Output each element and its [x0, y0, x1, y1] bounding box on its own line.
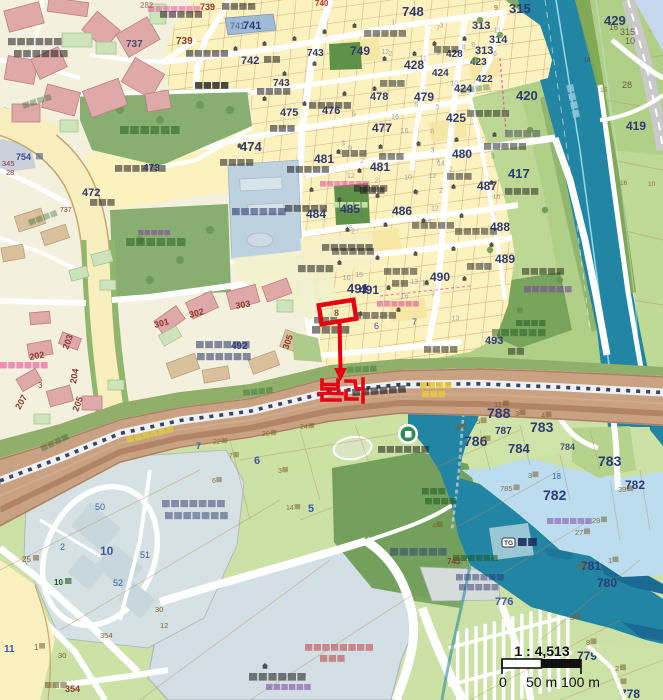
svg-text:5: 5: [570, 613, 574, 622]
svg-text:7: 7: [229, 453, 233, 460]
svg-text:784: 784: [508, 441, 530, 456]
svg-text:478: 478: [370, 91, 388, 103]
svg-text:417: 417: [508, 166, 530, 181]
svg-text:2: 2: [439, 188, 443, 195]
svg-text:28: 28: [6, 168, 14, 177]
svg-text:354: 354: [65, 684, 80, 694]
svg-text:2: 2: [375, 178, 379, 185]
svg-text:6: 6: [212, 478, 216, 485]
svg-text:1 : 4,513: 1 : 4,513: [514, 643, 569, 659]
svg-text:24: 24: [300, 424, 308, 431]
svg-text:5: 5: [308, 503, 314, 515]
svg-text:27: 27: [575, 528, 583, 537]
svg-text:743: 743: [273, 78, 290, 89]
svg-text:3: 3: [515, 409, 519, 418]
svg-text:25: 25: [22, 555, 31, 564]
svg-text:20: 20: [262, 431, 270, 438]
svg-text:315: 315: [509, 1, 531, 16]
svg-text:354: 354: [100, 631, 113, 640]
svg-text:2: 2: [360, 158, 364, 165]
svg-text:9: 9: [455, 423, 459, 432]
svg-text:16: 16: [391, 114, 399, 121]
svg-text:743: 743: [307, 48, 324, 59]
svg-text:487: 487: [477, 179, 497, 193]
svg-text:8: 8: [462, 44, 466, 51]
svg-text:8: 8: [430, 129, 434, 136]
svg-text:740: 740: [315, 0, 329, 8]
svg-text:13: 13: [452, 316, 460, 323]
svg-text:491: 491: [359, 283, 379, 297]
svg-text:743: 743: [447, 557, 461, 566]
svg-text:5: 5: [476, 417, 480, 426]
svg-text:783: 783: [598, 453, 622, 469]
svg-text:30: 30: [155, 605, 163, 614]
svg-text:0: 0: [499, 674, 507, 690]
svg-text:5: 5: [414, 102, 418, 109]
svg-text:10: 10: [450, 80, 458, 87]
svg-text:10: 10: [100, 544, 114, 558]
svg-text:481: 481: [314, 152, 334, 166]
svg-text:7: 7: [412, 317, 417, 327]
svg-text:50: 50: [95, 502, 105, 512]
svg-text:472: 472: [82, 187, 100, 199]
svg-text:15: 15: [463, 151, 471, 158]
svg-text:425: 425: [446, 111, 466, 125]
svg-text:5: 5: [436, 104, 440, 111]
svg-text:8: 8: [480, 435, 484, 444]
svg-text:787: 787: [495, 426, 512, 437]
svg-text:737: 737: [60, 207, 72, 214]
svg-text:486: 486: [392, 204, 412, 218]
svg-text:3: 3: [491, 153, 495, 160]
svg-text:422: 422: [476, 74, 493, 85]
svg-text:749: 749: [350, 44, 370, 58]
svg-text:748: 748: [402, 4, 424, 19]
svg-text:780: 780: [597, 576, 617, 590]
svg-text:313: 313: [475, 45, 493, 57]
svg-text:3: 3: [431, 148, 435, 155]
svg-text:6: 6: [395, 82, 399, 89]
svg-text:473: 473: [143, 163, 160, 174]
svg-text:4: 4: [427, 219, 431, 226]
svg-text:2: 2: [60, 542, 65, 552]
svg-text:742: 742: [241, 55, 259, 67]
svg-text:3: 3: [38, 381, 43, 390]
svg-text:16: 16: [493, 194, 501, 201]
svg-text:10: 10: [625, 36, 635, 46]
svg-text:39: 39: [618, 485, 626, 494]
svg-text:419: 419: [626, 119, 646, 133]
svg-text:16: 16: [620, 180, 628, 187]
svg-text:9: 9: [348, 145, 352, 152]
svg-text:1: 1: [391, 20, 395, 27]
svg-text:13: 13: [410, 279, 418, 286]
svg-text:282: 282: [140, 1, 154, 10]
svg-text:12: 12: [347, 173, 355, 180]
svg-text:52: 52: [113, 578, 123, 588]
svg-text:16: 16: [401, 128, 409, 135]
svg-text:7: 7: [436, 25, 440, 32]
svg-text:50 m: 50 m: [526, 674, 557, 690]
svg-text:739: 739: [200, 2, 215, 12]
svg-text:3: 3: [341, 140, 345, 147]
svg-text:481: 481: [370, 160, 390, 174]
svg-text:7: 7: [431, 291, 435, 298]
svg-text:51: 51: [140, 550, 150, 560]
svg-text:11: 11: [419, 55, 426, 62]
svg-text:14: 14: [286, 505, 294, 512]
svg-text:776: 776: [495, 596, 513, 608]
svg-text:8: 8: [471, 42, 475, 49]
svg-text:14: 14: [583, 57, 591, 64]
svg-text:3: 3: [528, 471, 532, 480]
svg-text:10: 10: [404, 174, 412, 181]
svg-text:16: 16: [401, 294, 409, 301]
svg-text:11: 11: [494, 400, 502, 409]
svg-text:2: 2: [449, 166, 453, 173]
svg-text:9: 9: [481, 263, 485, 270]
svg-text:345: 345: [2, 159, 15, 168]
svg-text:7: 7: [196, 441, 201, 451]
svg-text:6: 6: [374, 321, 379, 331]
svg-text:420: 420: [516, 88, 538, 103]
svg-text:4: 4: [383, 314, 387, 321]
svg-text:490: 490: [430, 270, 450, 284]
svg-text:493: 493: [485, 335, 503, 347]
svg-text:4: 4: [541, 411, 545, 420]
svg-text:784: 784: [560, 442, 575, 452]
svg-text:489: 489: [495, 252, 515, 266]
svg-text:485: 485: [340, 202, 360, 216]
svg-text:424: 424: [432, 68, 449, 79]
svg-text:29: 29: [592, 516, 600, 525]
svg-text:492: 492: [231, 341, 248, 352]
svg-text:12: 12: [429, 173, 437, 180]
svg-text:476: 476: [322, 105, 340, 117]
svg-text:783: 783: [530, 419, 554, 435]
svg-text:484: 484: [306, 207, 326, 221]
svg-text:10: 10: [54, 578, 63, 587]
svg-text:741: 741: [230, 21, 245, 31]
svg-text:12: 12: [431, 206, 439, 213]
svg-text:7: 7: [575, 562, 579, 571]
svg-text:754: 754: [16, 152, 31, 162]
svg-text:100 m: 100 m: [561, 674, 600, 690]
svg-text:15: 15: [355, 272, 363, 279]
svg-text:475: 475: [280, 107, 298, 119]
svg-text:15: 15: [600, 87, 608, 94]
svg-text:1: 1: [608, 556, 612, 565]
svg-text:3: 3: [440, 23, 444, 30]
svg-text:18: 18: [552, 472, 561, 481]
svg-text:7: 7: [436, 160, 440, 167]
svg-text:10: 10: [343, 275, 351, 282]
svg-text:10: 10: [648, 181, 656, 188]
svg-text:737: 737: [126, 39, 143, 50]
svg-text:12: 12: [382, 125, 390, 132]
svg-text:12: 12: [160, 621, 168, 630]
svg-text:6: 6: [493, 51, 497, 58]
svg-text:30: 30: [58, 651, 66, 660]
svg-text:4: 4: [497, 143, 501, 150]
svg-text:1: 1: [34, 643, 39, 652]
svg-text:739: 739: [176, 36, 193, 47]
svg-text:741: 741: [243, 20, 261, 32]
svg-text:28: 28: [622, 80, 632, 90]
svg-text:4: 4: [432, 521, 436, 530]
svg-text:8: 8: [334, 308, 339, 318]
svg-text:12: 12: [382, 49, 390, 56]
svg-text:6: 6: [254, 455, 260, 467]
svg-text:3: 3: [278, 468, 282, 475]
svg-text:782: 782: [543, 487, 567, 503]
svg-text:16: 16: [609, 23, 618, 32]
svg-text:11: 11: [4, 644, 15, 655]
svg-text:22: 22: [213, 439, 221, 446]
svg-text:785: 785: [500, 484, 513, 493]
svg-text:9: 9: [436, 50, 440, 57]
svg-text:TG: TG: [504, 540, 513, 547]
svg-text:474: 474: [240, 139, 262, 154]
svg-text:9: 9: [352, 112, 356, 119]
svg-text:1: 1: [360, 212, 364, 219]
svg-text:9: 9: [494, 5, 498, 12]
